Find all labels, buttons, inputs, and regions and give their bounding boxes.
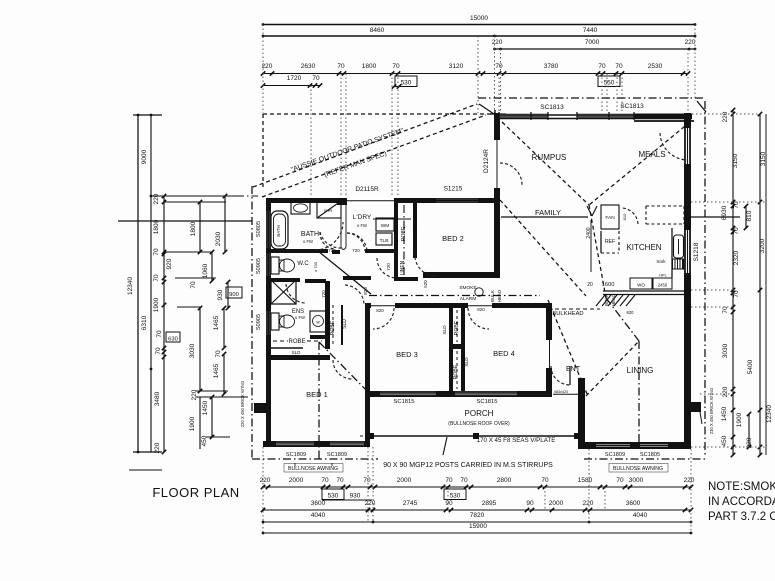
svg-text:90 X 90 MGP12 POSTS CARRIED IN: 90 X 90 MGP12 POSTS CARRIED IN M.S STIRR… [383,462,553,469]
svg-text:90: 90 [445,500,453,507]
svg-text:70: 70 [616,477,624,484]
svg-text:720: 720 [386,263,391,271]
svg-text:SC1815: SC1815 [477,399,498,405]
svg-text:SC1815: SC1815 [394,399,415,405]
svg-text:70: 70 [615,63,623,70]
svg-text:9000: 9000 [141,149,148,164]
svg-text:820: 820 [376,308,384,313]
svg-text:SC1809: SC1809 [605,452,625,458]
svg-text:20: 20 [587,282,593,288]
svg-text:2800: 2800 [497,477,512,484]
svg-text:220: 220 [722,111,729,122]
svg-text:L'DRY: L'DRY [353,214,372,221]
svg-text:6310: 6310 [141,315,148,330]
svg-text:7000: 7000 [585,39,600,46]
svg-text:S0905: S0905 [256,314,262,330]
svg-text:BULK: BULK [490,289,495,302]
svg-text:220: 220 [722,386,729,397]
svg-text:S1215: S1215 [444,186,463,193]
svg-text:HEAD: HEAD [497,289,502,302]
svg-text:12340: 12340 [127,277,134,295]
svg-text:1900: 1900 [189,416,196,431]
svg-text:D2115R: D2115R [355,186,379,193]
svg-text:12340: 12340 [766,405,773,423]
svg-text:7820: 7820 [470,512,485,519]
svg-text:WM: WM [381,223,390,229]
svg-text:810: 810 [622,213,627,220]
svg-text:3150: 3150 [732,153,739,168]
svg-text:2320: 2320 [733,250,740,265]
svg-text:FAN: FAN [605,215,615,221]
svg-text:70: 70 [153,274,160,282]
svg-text:ENT: ENT [566,366,581,373]
svg-text:KITCHEN: KITCHEN [626,243,661,252]
svg-text:SLD: SLD [413,221,419,231]
svg-text:IN ACCORDANC: IN ACCORDANC [708,496,775,508]
svg-text:SLD: SLD [442,325,448,335]
svg-text:70: 70 [541,477,549,484]
svg-text:1580: 1580 [578,477,593,484]
svg-text:70: 70 [598,63,606,70]
svg-text:2030: 2030 [215,231,222,246]
svg-text:SMOKE: SMOKE [459,285,476,291]
svg-text:o FW: o FW [295,315,305,320]
svg-text:ALARM: ALARM [460,296,477,302]
svg-text:70: 70 [155,347,162,355]
svg-text:820: 820 [363,287,368,295]
svg-text:1720: 1720 [287,75,302,82]
svg-text:230 X 450 BRICK W'ING: 230 X 450 BRICK W'ING [709,388,714,434]
svg-text:70: 70 [215,350,222,358]
svg-text:530: 530 [450,493,461,500]
svg-text:ROBE: ROBE [330,320,336,335]
svg-text:S1218: S1218 [693,242,700,261]
svg-text:SLD: SLD [464,357,470,367]
svg-text:SC1813: SC1813 [620,103,644,110]
svg-text:720: 720 [352,248,360,253]
svg-text:PORCH: PORCH [465,409,494,418]
svg-text:70: 70 [460,477,468,484]
svg-text:Sink: Sink [656,259,666,265]
svg-text:HPL: HPL [659,274,666,278]
svg-text:70: 70 [336,477,344,484]
svg-text:1060: 1060 [202,263,209,278]
svg-text:BED 4: BED 4 [493,349,515,358]
svg-text:MEALS: MEALS [638,150,665,159]
svg-text:SC1813: SC1813 [540,104,564,111]
svg-text:SHR: SHR [324,208,333,213]
svg-text:630: 630 [168,337,178,343]
svg-text:PART 3.7.2 OF: PART 3.7.2 OF [708,511,775,523]
svg-text:TLB: TLB [380,238,389,244]
svg-text:SC1809: SC1809 [327,452,347,458]
svg-text:o FW: o FW [357,223,367,228]
svg-text:3200: 3200 [759,238,766,253]
svg-text:ROBE: ROBE [453,364,459,379]
svg-text:520: 520 [423,280,428,288]
svg-text:2630: 2630 [301,63,316,70]
svg-text:D2124R: D2124R [483,149,490,173]
svg-text:70: 70 [321,477,329,484]
svg-text:90: 90 [526,500,534,507]
svg-text:2000: 2000 [397,477,412,484]
svg-text:LINING: LINING [627,366,654,375]
svg-text:820: 820 [627,310,635,315]
svg-text:3030: 3030 [722,343,729,358]
svg-text:BULLNOSE AWNING: BULLNOSE AWNING [288,466,338,472]
svg-text:4040: 4040 [311,512,326,519]
svg-text:220: 220 [684,477,695,484]
svg-text:483x420: 483x420 [554,390,569,394]
svg-text:BATH: BATH [301,231,319,238]
svg-text:1465: 1465 [213,315,220,330]
svg-text:ROBE: ROBE [401,226,407,241]
svg-text:720: 720 [328,248,336,253]
svg-text:220: 220 [260,477,271,484]
svg-text:220: 220 [153,193,160,204]
svg-text:SC1805: SC1805 [640,452,660,458]
svg-text:70: 70 [156,330,163,338]
svg-text:8460: 8460 [370,27,385,34]
svg-text:NOTE:SMOKE A: NOTE:SMOKE A [708,481,775,493]
svg-text:3600: 3600 [626,500,641,507]
svg-text:W.C: W.C [297,261,309,267]
svg-text:450: 450 [721,435,728,446]
svg-text:70: 70 [392,63,400,70]
svg-text:3480: 3480 [154,391,161,406]
svg-text:1900: 1900 [736,412,743,427]
svg-text:o FW: o FW [303,239,313,244]
svg-text:SC1809: SC1809 [286,452,306,458]
svg-text:2450: 2450 [658,283,668,288]
svg-text:3120: 3120 [449,63,464,70]
svg-text:S0805: S0805 [256,221,262,237]
svg-text:1450: 1450 [202,400,209,415]
svg-text:220: 220 [492,39,503,46]
svg-text:720: 720 [321,290,326,298]
svg-text:1465: 1465 [213,363,220,378]
svg-text:930: 930 [350,493,361,500]
svg-text:70: 70 [337,63,345,70]
svg-text:BED 3: BED 3 [396,350,418,359]
svg-text:3600: 3600 [311,500,326,507]
svg-text:REF: REF [605,239,615,245]
svg-text:BULKHEAD: BULKHEAD [552,311,583,317]
svg-text:70: 70 [495,63,503,70]
svg-text:ROBE: ROBE [288,339,305,345]
svg-text:BULLNOSE AWNING: BULLNOSE AWNING [613,466,663,472]
svg-text:3030: 3030 [189,343,196,358]
svg-text:530: 530 [401,80,412,87]
svg-text:FAMILY: FAMILY [535,208,561,217]
svg-text:1800: 1800 [362,63,377,70]
svg-text:HEAD: HEAD [611,293,616,306]
svg-text:220: 220 [365,500,376,507]
svg-text:7440: 7440 [583,27,598,34]
svg-text:4040: 4040 [633,512,648,519]
svg-text:(BULLNOSE ROOF OVER): (BULLNOSE ROOF OVER) [448,421,510,427]
svg-text:BULK: BULK [604,293,609,306]
svg-text:70: 70 [733,290,740,298]
svg-text:o 730: o 730 [313,261,318,272]
svg-text:RUMPUS: RUMPUS [532,153,567,162]
svg-text:SLD: SLD [292,350,302,355]
svg-text:220 X 450 BRICK W'ING: 220 X 450 BRICK W'ING [240,381,245,427]
svg-text:2895: 2895 [482,500,497,507]
svg-text:1900: 1900 [153,297,160,312]
svg-text:5400: 5400 [747,359,754,374]
svg-text:3000: 3000 [629,477,644,484]
svg-text:70: 70 [153,248,160,256]
svg-text:820: 820 [477,307,485,312]
svg-text:920: 920 [166,258,173,269]
svg-text:2745: 2745 [403,500,418,507]
svg-text:15000: 15000 [470,15,488,22]
svg-text:220: 220 [685,39,696,46]
svg-text:550: 550 [604,80,615,87]
svg-text:BED 1: BED 1 [306,390,328,399]
svg-text:70: 70 [190,281,197,289]
svg-text:2530: 2530 [648,63,663,70]
svg-text:930: 930 [217,289,224,300]
svg-text:BED 2: BED 2 [442,234,464,243]
svg-text:15900: 15900 [469,523,487,530]
svg-text:6930: 6930 [721,205,728,220]
svg-text:530: 530 [328,493,339,500]
svg-text:WO: WO [637,283,645,288]
svg-text:900: 900 [229,292,239,298]
svg-text:1600: 1600 [602,282,615,288]
svg-text:70: 70 [363,477,371,484]
svg-text:BATH: BATH [276,225,281,236]
svg-text:70: 70 [445,477,453,484]
svg-text:LINEN: LINEN [400,260,406,275]
svg-text:2000: 2000 [549,500,564,507]
svg-text:220: 220 [583,500,594,507]
svg-text:FLOOR PLAN: FLOOR PLAN [152,485,239,500]
svg-text:3780: 3780 [544,63,559,70]
svg-text:2000: 2000 [289,477,304,484]
svg-text:1450: 1450 [721,406,728,421]
svg-text:810: 810 [746,210,753,221]
svg-text:SLD: SLD [342,319,348,329]
svg-text:70: 70 [312,75,320,82]
svg-text:1800: 1800 [190,221,197,236]
svg-text:S0905: S0905 [256,258,262,274]
svg-text:170 X 45 F8 SEAS V/PLATE: 170 X 45 F8 SEAS V/PLATE [477,437,556,444]
svg-text:70: 70 [733,227,740,235]
